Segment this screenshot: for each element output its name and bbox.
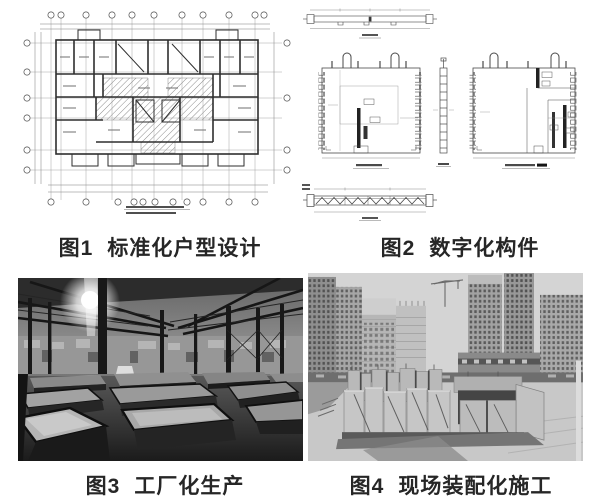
lattice-girder-drawing [302,184,437,221]
figure-1-caption: 图1标准化户型设计 [10,232,310,262]
figure-grid: 图1标准化户型设计 [0,0,600,503]
factory-photo [18,278,303,461]
floor-plan-drawing [8,2,293,224]
wall-panel-left-drawing [319,53,422,169]
construction-site-graphic [308,273,583,461]
figure-1-label: 图1 [59,237,94,260]
panel-side-view-drawing [433,58,454,167]
figure-4-title: 现场装配化施工 [398,475,552,498]
beam-plan-drawing [303,9,437,39]
figure-2-label: 图2 [381,237,416,260]
figure-3-label: 图3 [86,475,121,498]
plan-subtitle-lines [124,206,190,214]
precast-wall-assembly [318,364,544,450]
figure-2-title: 数字化构件 [429,237,539,260]
wall-panel-right-drawing [470,53,577,169]
component-drawing-image [300,0,598,222]
figure-3-caption: 图3工厂化生产 [20,470,310,500]
figure-1-title: 标准化户型设计 [107,237,261,260]
figure-2-caption: 图2数字化构件 [315,232,600,262]
figure-3-title: 工厂化生产 [134,475,244,498]
factory-photo-graphic [18,278,303,461]
construction-site-photo [308,273,583,461]
figure-4-caption: 图4现场装配化施工 [312,470,590,500]
figure-4-label: 图4 [350,475,385,498]
light-pole-strip [576,361,581,461]
component-drawings [300,0,598,222]
floor-plan-image [8,2,293,224]
